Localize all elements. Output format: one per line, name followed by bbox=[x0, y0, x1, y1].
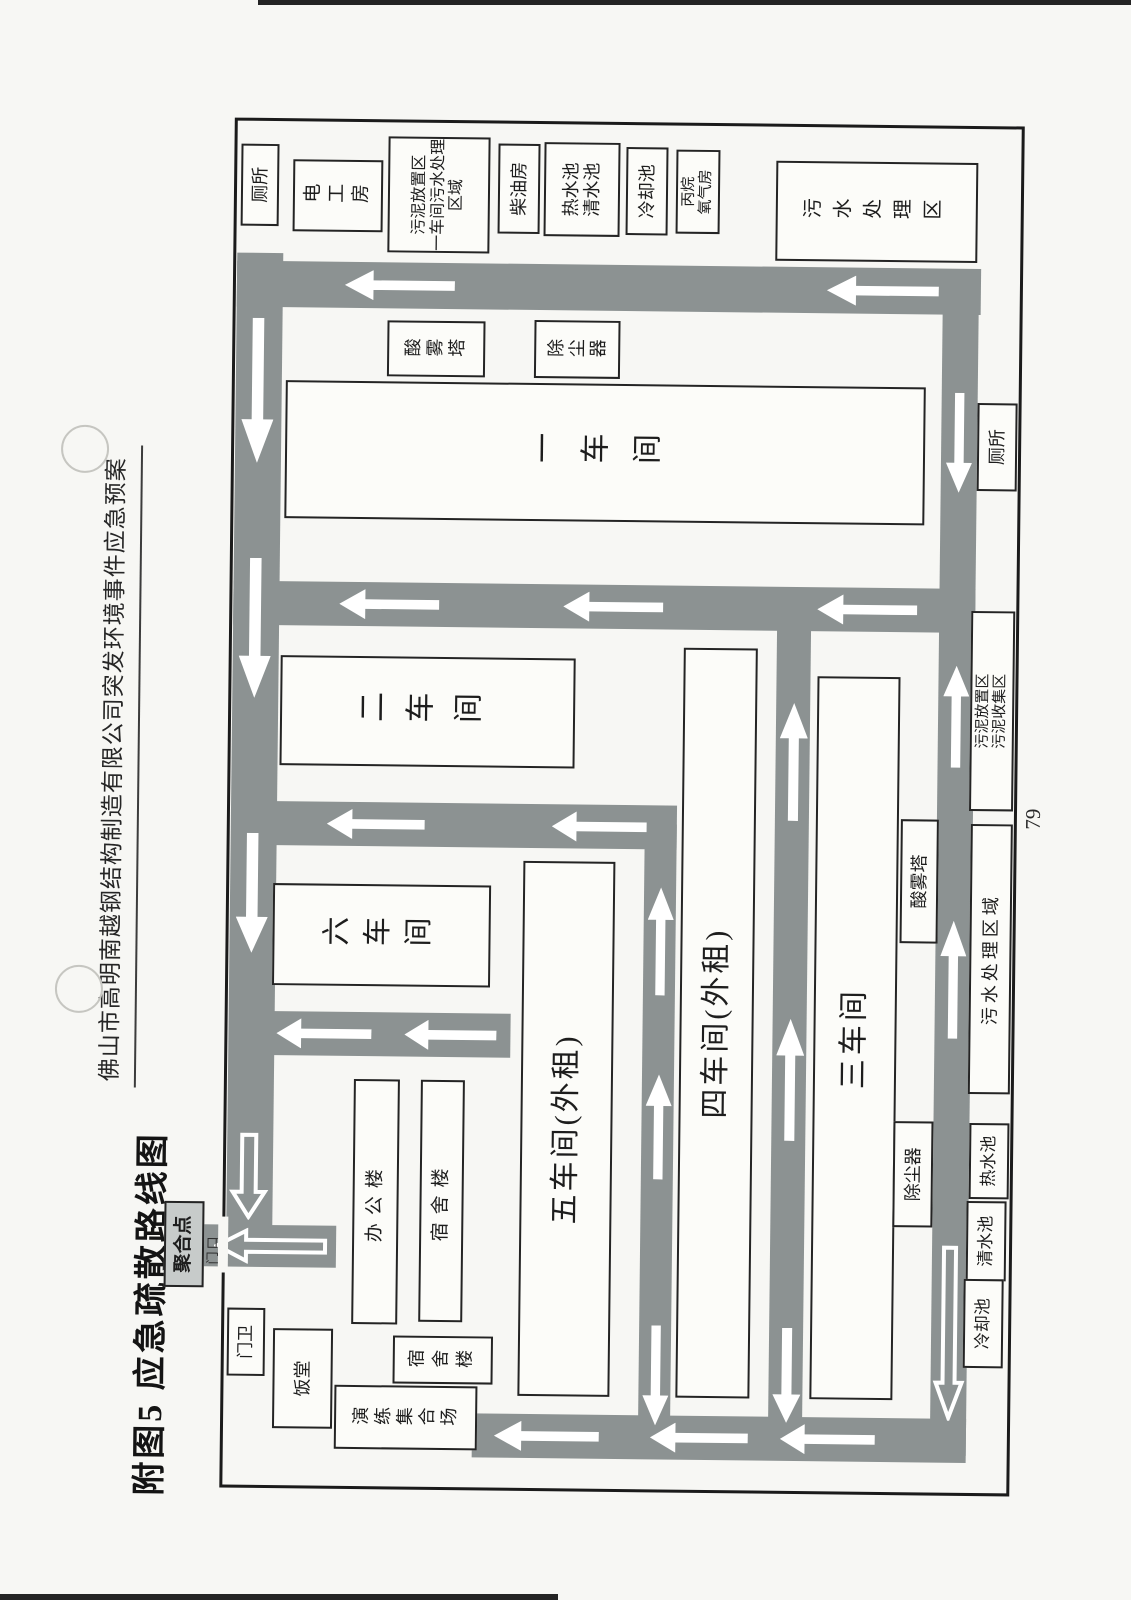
diesel-room-label: 柴油房 bbox=[508, 162, 529, 216]
building-dormitory-small: 宿舍楼 bbox=[392, 1335, 493, 1384]
evacuation-arrow-outlined-up bbox=[214, 1227, 328, 1264]
building-hot-clean-pool-east: 热水池 清水池 bbox=[544, 142, 621, 237]
sludge-north-line2: 一车间污水处理区域 bbox=[429, 139, 467, 251]
electrician-room-label: 电工房 bbox=[302, 184, 374, 207]
building-dormitory-large: 宿舍楼 bbox=[418, 1080, 465, 1322]
building-sludge-area-south: 污泥放置区 污泥收集区 bbox=[969, 611, 1015, 811]
sludge-south-line2: 污泥收集区 bbox=[992, 674, 1010, 749]
header-underline bbox=[134, 446, 143, 1088]
building-cooling-pool-south: 冷却池 bbox=[963, 1279, 1004, 1368]
sewage-area-east-label: 污水处理区 bbox=[802, 200, 952, 225]
acid-tower-south-label: 酸雾塔 bbox=[909, 854, 930, 908]
building-workshop1: 一车间 bbox=[284, 380, 926, 525]
evacuation-arrow-outlined-left bbox=[228, 1132, 269, 1220]
dust-remover-north-label: 除尘器 bbox=[546, 339, 609, 360]
building-workshop6: 六车间 bbox=[272, 883, 491, 987]
building-guard-post: 门卫 bbox=[227, 1308, 266, 1376]
building-sewage-area-east: 污水处理区 bbox=[775, 161, 978, 263]
building-diesel-room: 柴油房 bbox=[498, 144, 541, 234]
gate-label: 门口 bbox=[202, 1234, 221, 1264]
building-workshop5: 五车间(外租) bbox=[517, 861, 615, 1397]
drill-ground-label: 演练集合场 bbox=[350, 1407, 460, 1429]
building-drill-assembly-ground: 演练集合场 bbox=[334, 1385, 478, 1451]
workshop6-label: 六车间 bbox=[320, 918, 443, 953]
scan-edge-top bbox=[258, 0, 1131, 5]
clean-pool-south-label: 清水池 bbox=[976, 1216, 996, 1267]
building-clean-pool-south: 清水池 bbox=[966, 1201, 1007, 1281]
cooling-pool-east-label: 冷却池 bbox=[636, 164, 657, 218]
building-canteen: 饭堂 bbox=[272, 1328, 333, 1429]
dust-remover-south-label: 除尘器 bbox=[902, 1147, 923, 1201]
toilet-north-label: 厕所 bbox=[250, 167, 271, 203]
clean-pool-east-label: 清水池 bbox=[582, 163, 603, 217]
building-cooling-pool-east: 冷却池 bbox=[626, 147, 669, 235]
workshop1-label: 一车间 bbox=[527, 435, 683, 471]
hot-pool-east-label: 热水池 bbox=[561, 162, 582, 216]
evacuation-arrow-outlined-left bbox=[932, 1245, 966, 1421]
scan-edge-bottom bbox=[0, 1594, 558, 1600]
page-number: 79 bbox=[1021, 809, 1046, 830]
cooling-pool-south-label: 冷却池 bbox=[973, 1298, 993, 1349]
building-office: 办公楼 bbox=[351, 1079, 400, 1325]
workshop4-label: 四车间(外租) bbox=[698, 927, 735, 1118]
propane-line1: 丙烷 bbox=[681, 169, 699, 214]
landscape-diagram: 佛山市高明南越钢结构制造有限公司突发环境事件应急预案 附图5 应急疏散路线图 7… bbox=[0, 0, 1131, 1600]
sewage-area-south-label: 污水处理区域 bbox=[979, 893, 1001, 1025]
building-propane-oxygen-room: 丙烷 氧气房 bbox=[676, 150, 721, 234]
building-acid-mist-tower-north: 酸雾塔 bbox=[387, 320, 486, 377]
workshop3-label: 三车间 bbox=[837, 987, 873, 1089]
building-toilet-south: 厕所 bbox=[977, 403, 1018, 491]
building-workshop3: 三车间 bbox=[809, 676, 900, 1400]
dormitory-small-label: 宿舍楼 bbox=[407, 1349, 479, 1371]
scanned-page: 佛山市高明南越钢结构制造有限公司突发环境事件应急预案 附图5 应急疏散路线图 7… bbox=[0, 0, 1131, 1600]
building-toilet-north: 厕所 bbox=[241, 144, 280, 226]
toilet-south-label: 厕所 bbox=[987, 429, 1008, 465]
building-acid-mist-tower-south: 酸雾塔 bbox=[900, 819, 939, 943]
building-sewage-area-south: 污水处理区域 bbox=[968, 824, 1013, 1094]
assembly-point: 聚合点 bbox=[164, 1201, 205, 1287]
workshop2-label: 二车间 bbox=[355, 694, 499, 730]
workshop5-label: 五车间(外租) bbox=[548, 1033, 585, 1224]
propane-line2: 氧气房 bbox=[698, 169, 716, 214]
canteen-label: 饭堂 bbox=[292, 1360, 313, 1396]
building-dust-remover-north: 除尘器 bbox=[534, 320, 621, 379]
sludge-south-line1: 污泥放置区 bbox=[974, 674, 992, 749]
building-workshop4: 四车间(外租) bbox=[675, 648, 758, 1399]
building-hot-pool-south: 热水池 bbox=[969, 1123, 1010, 1199]
building-workshop2: 二车间 bbox=[279, 655, 575, 768]
building-sludge-area-north: 污泥放置区 一车间污水处理区域 bbox=[387, 136, 490, 253]
assembly-point-label: 聚合点 bbox=[173, 1215, 195, 1272]
guard-post-label: 门卫 bbox=[236, 1325, 256, 1359]
sludge-north-line1: 污泥放置区 bbox=[411, 139, 431, 251]
building-dust-remover-south: 除尘器 bbox=[892, 1121, 933, 1227]
building-electrician-room: 电工房 bbox=[293, 159, 384, 232]
figure-title: 附图5 应急疏散路线图 bbox=[121, 1131, 174, 1496]
dormitory-large-label: 宿舍楼 bbox=[430, 1160, 453, 1241]
office-label: 办公楼 bbox=[364, 1161, 387, 1242]
acid-tower-north-label: 酸雾塔 bbox=[403, 338, 469, 359]
punch-hole bbox=[61, 425, 110, 474]
hot-pool-south-label: 热水池 bbox=[979, 1136, 999, 1187]
